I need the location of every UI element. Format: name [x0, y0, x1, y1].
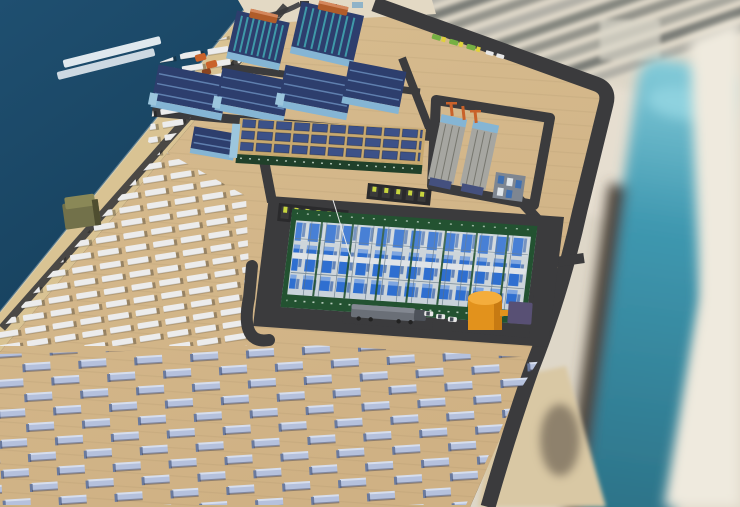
render-viewport: Aerial 3D rendering of a coastal desalin… — [0, 0, 740, 507]
plant-render: Aerial 3D rendering of a coastal desalin… — [0, 0, 740, 507]
solar-panel-field — [0, 342, 540, 505]
electrical-shed — [492, 172, 525, 202]
tank-skid — [507, 301, 532, 325]
hall-access-road-3 — [556, 258, 584, 262]
